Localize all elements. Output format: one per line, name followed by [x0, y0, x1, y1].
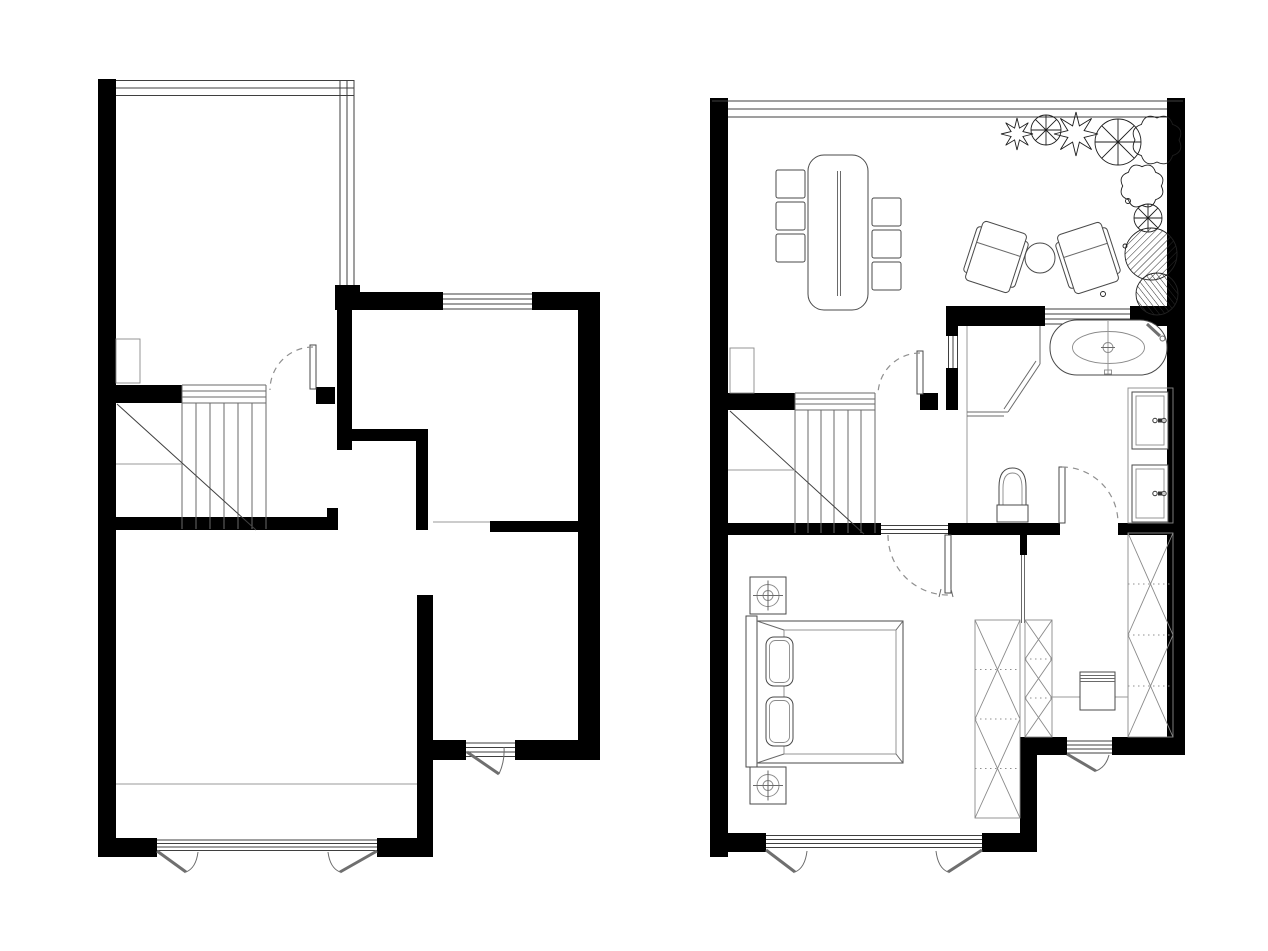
dining-chair	[872, 230, 901, 258]
bedroom-window	[766, 836, 982, 873]
door-leaf	[467, 752, 499, 774]
lounge-chair	[961, 219, 1032, 295]
nightstand	[750, 577, 786, 614]
door-leaf	[917, 351, 923, 394]
hatched-shrub	[1125, 228, 1177, 280]
walls-left	[98, 79, 600, 857]
dining-chair	[872, 262, 901, 290]
toilet	[997, 468, 1028, 522]
sink	[1132, 392, 1168, 449]
dining-set	[776, 155, 901, 310]
door-swing-arc	[878, 353, 920, 395]
stair-break-line	[117, 404, 256, 530]
dressing-bench	[1080, 672, 1115, 710]
conservatory-glazing	[116, 80, 354, 285]
bathtub	[1050, 320, 1167, 375]
sink	[1132, 465, 1168, 522]
wardrobe	[1025, 620, 1052, 737]
french-window	[157, 840, 377, 872]
dining-chair	[776, 234, 805, 262]
window-upper-room	[443, 294, 532, 309]
door-swing-arc	[1062, 467, 1118, 523]
bushy-tree	[1121, 165, 1163, 207]
glass-partition	[1022, 555, 1025, 623]
drawing-sheet	[0, 0, 1268, 951]
floor-plan-left	[98, 79, 600, 872]
bathroom	[949, 309, 1174, 523]
dining-chair	[872, 198, 901, 226]
lounge-area	[961, 219, 1124, 296]
casement-leaf	[766, 850, 795, 872]
lounge-chair	[1053, 220, 1124, 296]
shower	[967, 326, 1040, 416]
understairs-closet	[116, 339, 140, 383]
fan-tree	[1031, 115, 1061, 145]
floor-plans-canvas	[0, 0, 1268, 951]
floor-plan-right	[710, 98, 1185, 872]
faucet	[1158, 419, 1162, 423]
terrace-glazing	[712, 101, 1183, 117]
staircase-left	[116, 339, 266, 530]
casement-leaf	[948, 850, 982, 872]
wardrobe	[975, 620, 1020, 818]
understairs-closet	[730, 348, 754, 393]
round-side-table	[1025, 243, 1055, 273]
stair-break-line	[730, 411, 864, 534]
door-leaf	[310, 345, 316, 389]
wardrobe	[1128, 533, 1173, 737]
casement-leaf	[340, 851, 377, 872]
door-leaf	[1059, 467, 1065, 523]
bathroom-door	[1059, 467, 1118, 523]
terrace-door	[878, 351, 923, 395]
door-leaf	[945, 535, 951, 593]
headboard	[746, 616, 757, 767]
bed	[746, 616, 903, 767]
faucet	[1158, 492, 1162, 496]
casement-leaf	[157, 851, 186, 872]
dining-chair	[776, 202, 805, 230]
pebble	[1101, 292, 1106, 297]
vanity	[1128, 388, 1173, 523]
staircase-right	[728, 348, 875, 534]
bathroom-window-west	[949, 336, 958, 368]
garden-door	[466, 743, 515, 774]
dressing-window	[1067, 741, 1112, 771]
casement-leaf	[1067, 754, 1096, 771]
dining-chair	[776, 170, 805, 198]
hatched-shrub	[1136, 273, 1178, 315]
door-swing-arc	[270, 347, 313, 390]
door-swing-arc	[888, 535, 948, 595]
bedroom-door	[881, 526, 953, 598]
spiky-plant	[1001, 118, 1033, 150]
stair-hall-door	[270, 345, 316, 390]
nightstand	[750, 767, 786, 804]
bedroom	[746, 526, 1173, 873]
